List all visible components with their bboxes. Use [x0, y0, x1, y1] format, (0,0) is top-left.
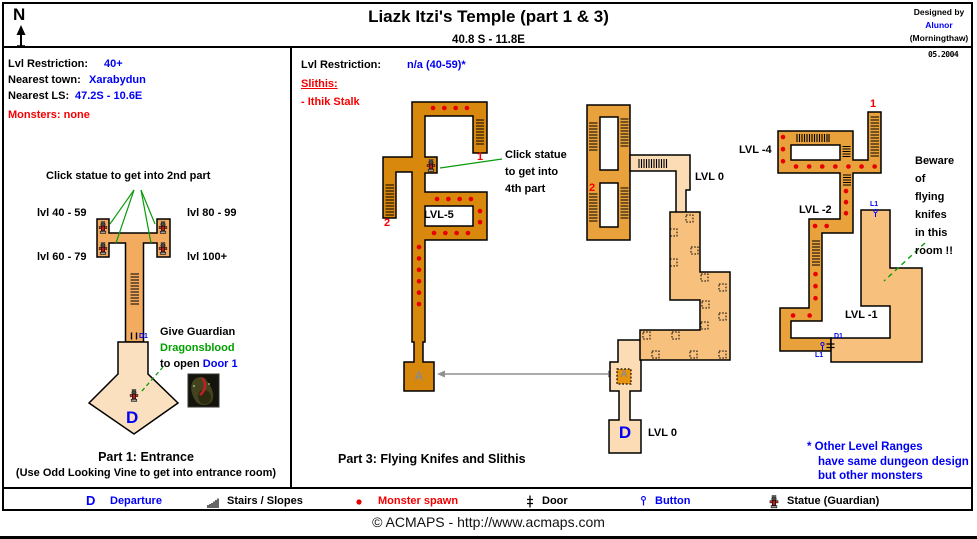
p3-portal-a-left: A [404, 370, 434, 383]
legend-button-label: Button [655, 496, 690, 508]
designer-name: Alunor [904, 21, 974, 30]
p3-button-bottom-tag: L1 [815, 352, 823, 359]
p1-give-guardian: Give Guardian [160, 327, 235, 339]
p3-departure-label: D [609, 424, 641, 442]
p3-warn-3: flying [915, 192, 944, 204]
p3-warn-4: knifes [915, 210, 947, 222]
p1-lvl-restriction-label: Lvl Restriction: [8, 59, 88, 71]
door-room [640, 212, 730, 360]
lvl0-exit-corridor [630, 155, 690, 213]
p1-lvl-40-59: lvl 40 - 59 [37, 208, 87, 220]
p3-slithis-item: - Ithik Stalk [301, 97, 360, 109]
compass-label: N [13, 6, 25, 24]
p1-nearest-ls-label: Nearest LS: [8, 91, 69, 103]
p3-warn-2: of [915, 174, 925, 186]
p3-lvl5-stairs1: 1 [477, 152, 483, 164]
lvl5-dungeon [383, 102, 487, 391]
p1-caption: Part 1: Entrance [2, 451, 290, 464]
page-title: Liazk Itzi's Temple (part 1 & 3) [368, 8, 609, 26]
legend-monster-icon [356, 499, 361, 504]
designer-world: (Morningthaw) [904, 34, 974, 43]
legend-statue-label: Statue (Guardian) [787, 496, 879, 508]
legend-stairs-label: Stairs / Slopes [227, 496, 303, 508]
p1-door1-link: Door 1 [203, 358, 238, 370]
portal-link-arrow [437, 371, 616, 378]
legend-departure-label: Departure [110, 496, 162, 508]
p1-door1-tag: D1 [139, 333, 148, 340]
legend-stairs-icon [208, 499, 218, 509]
p3-statue-note-3: 4th part [505, 184, 545, 196]
p3-warn-6: room !! [915, 246, 953, 258]
designed-by-label: Designed by [904, 8, 974, 17]
p3-warn-5: in this [915, 228, 947, 240]
p3-ring-stairs2: 2 [589, 183, 595, 195]
p3-lvl-restriction-value: n/a (40-59)* [407, 60, 466, 72]
p1-monsters: Monsters: none [8, 110, 90, 122]
p1-nearest-ls-value: 47.2S - 10.6E [75, 91, 142, 103]
p3-lvl1-label: LVL -1 [845, 310, 878, 322]
p3-lvl2-label: LVL -2 [799, 205, 832, 217]
p1-lvl-restriction-value: 40+ [104, 59, 123, 71]
p3-lvl5-label: LVL-5 [424, 210, 454, 222]
p3-warn-1: Beware [915, 156, 954, 168]
map-date: 05.2004 [928, 51, 958, 59]
legend-button-icon [642, 497, 646, 506]
legend-statue-icon [770, 495, 778, 507]
p3-lvl-restriction-label: Lvl Restriction: [301, 60, 381, 72]
p1-nearest-town-value: Xarabydun [89, 75, 146, 87]
p1-nearest-town-label: Nearest town: [8, 75, 81, 87]
p3-lvl4-stairs1: 1 [870, 99, 876, 111]
p1-lvl-80-99: lvl 80 - 99 [187, 208, 237, 220]
p1-to-open: to open [160, 358, 200, 370]
p1-lvl-100: lvl 100+ [187, 252, 227, 264]
part1-statue-room [97, 219, 170, 342]
p3-slithis-label: Slithis: [301, 79, 338, 91]
p3-lvl0-label-bottom: LVL 0 [648, 428, 677, 440]
p3-note-3: but other monsters [818, 470, 923, 482]
legend-monster-label: Monster spawn [378, 496, 458, 508]
acmaps-dungeon-map: N Liazk Itzi's Temple (part 1 & 3) 40.8 … [0, 0, 977, 539]
p3-lvl0-label-top: LVL 0 [695, 172, 724, 184]
p3-caption: Part 3: Flying Knifes and Slithis [338, 453, 526, 466]
p3-lvl4-label: LVL -4 [739, 145, 772, 157]
p3-statue-note-2: to get into [505, 167, 558, 179]
legend-door-label: Door [542, 496, 568, 508]
compass-arrow-icon [17, 25, 26, 46]
footer-copyright: © ACMAPS - http://www.acmaps.com [372, 515, 605, 530]
lvl5-statue-pointer-line [440, 159, 502, 168]
p1-statue-note: Click statue to get into 2nd part [46, 171, 210, 183]
p3-door1-tag: D1 [834, 333, 843, 340]
p3-note-2: have same dungeon design [818, 456, 969, 468]
legend-departure-symbol: D [86, 494, 95, 508]
p1-departure-label: D [126, 409, 138, 427]
p3-button-top-tag: L1 [870, 201, 878, 208]
map-coords: 40.8 S - 11.8E [452, 34, 525, 46]
guardian-image [188, 374, 219, 407]
p1-dragonsblood: Dragonsblood [160, 343, 235, 355]
legend-door-icon [527, 496, 533, 508]
p1-to-open-line: to open Door 1 [160, 359, 238, 371]
p1-caption-sub: (Use Odd Looking Vine to get into entran… [2, 468, 290, 480]
p3-note-1: * Other Level Ranges [807, 441, 923, 453]
p3-statue-note-1: Click statue [505, 150, 567, 162]
lvl0-ring-dungeon [587, 105, 630, 240]
p3-portal-a-right: A [616, 370, 632, 381]
p3-lvl5-stairs2: 2 [384, 218, 390, 230]
p1-lvl-60-79: lvl 60 - 79 [37, 252, 87, 264]
